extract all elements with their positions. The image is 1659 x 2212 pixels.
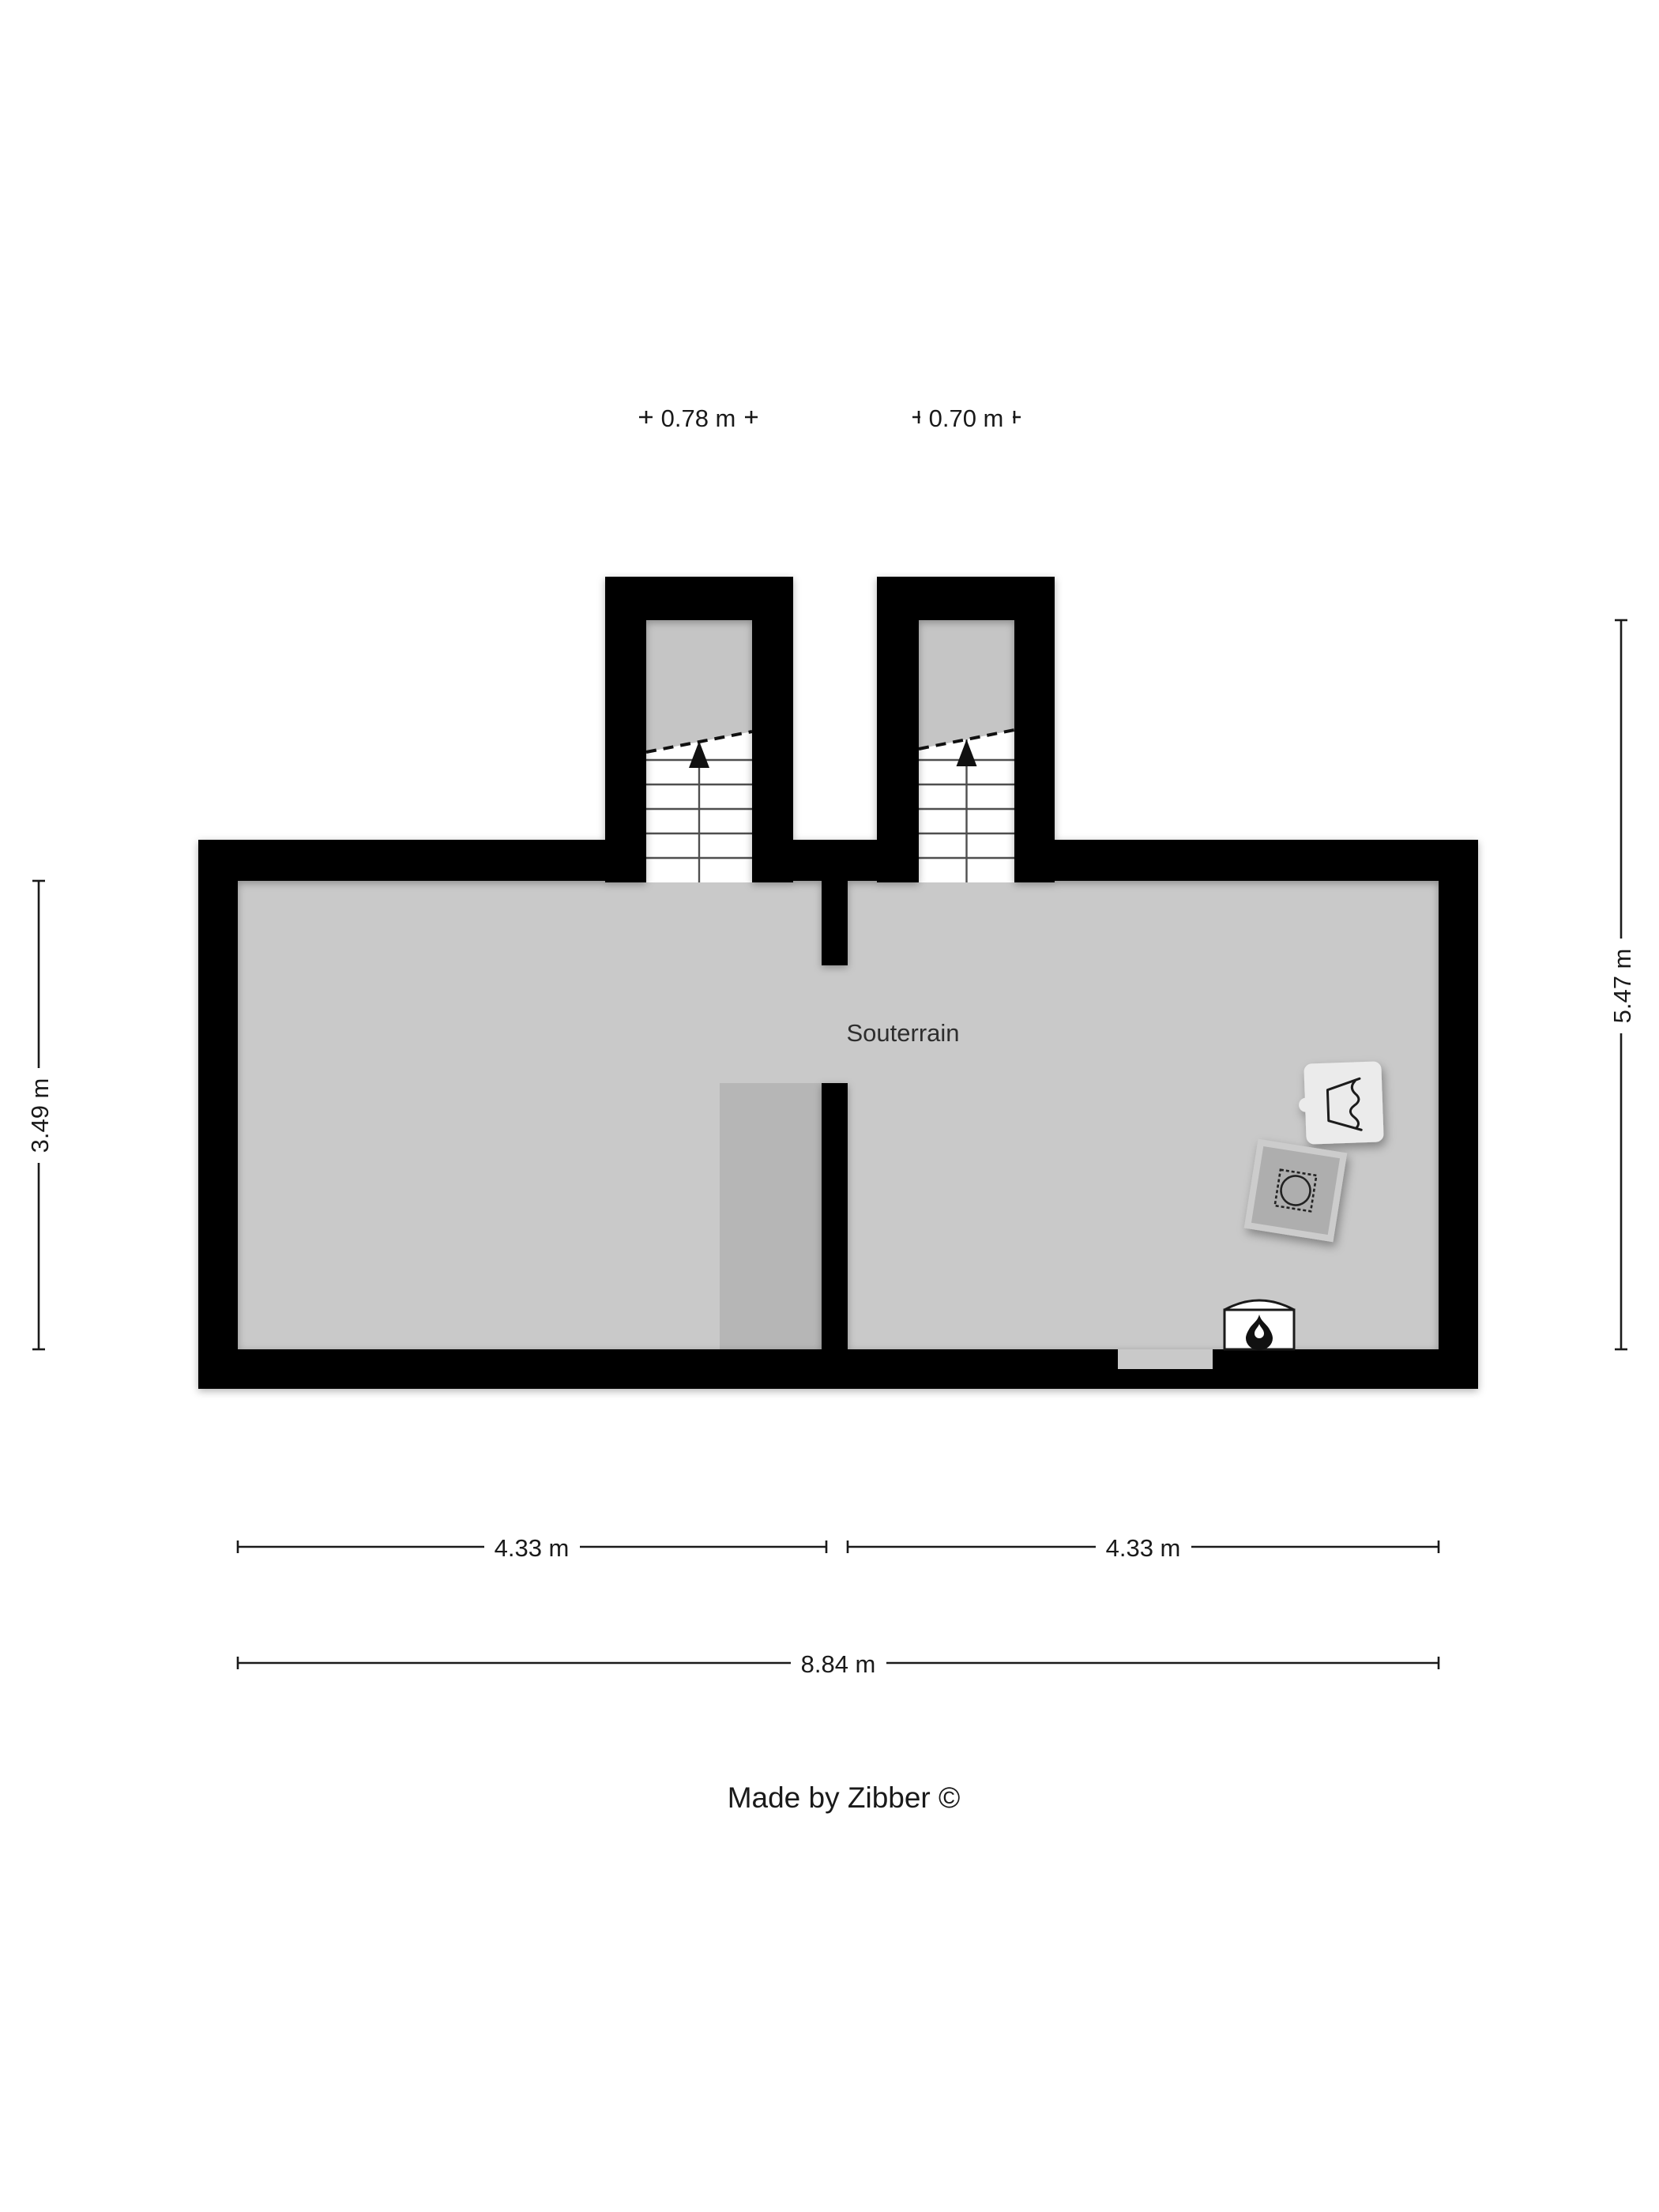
washing-machine-icon xyxy=(1247,1142,1343,1238)
dim-total-width: 8.84 m xyxy=(238,1647,1439,1679)
wall-top-segment xyxy=(1014,840,1478,881)
dim-label: 5.47 m xyxy=(1608,949,1636,1024)
wall-bottom xyxy=(198,1349,1478,1389)
dim-label: 4.33 m xyxy=(1106,1534,1181,1562)
wall-left xyxy=(198,840,238,1389)
divider-wall-lower xyxy=(822,1083,848,1349)
wall-right xyxy=(1439,840,1478,1389)
dim-room-left-width: 4.33 m xyxy=(238,1531,826,1563)
stair-left-tower-wall xyxy=(605,577,646,882)
stair-left-tower-wall xyxy=(605,577,793,620)
stair-left-tower-wall xyxy=(752,577,793,882)
dim-right-height: 5.47 m xyxy=(1605,620,1637,1349)
bottom-wall-recess xyxy=(1118,1349,1213,1369)
dim-stair-left-width: 0.78 m xyxy=(639,401,758,433)
room-label: Souterrain xyxy=(846,1019,959,1047)
dim-stair-right-width: 0.70 m xyxy=(912,401,1021,433)
water-heater-icon xyxy=(1297,1061,1383,1145)
stair-left xyxy=(646,620,752,882)
dim-left-height: 3.49 m xyxy=(23,881,55,1349)
divider-wall-upper xyxy=(822,881,848,965)
credit-text: Made by Zibber © xyxy=(728,1781,961,1814)
stair-right-tower-wall xyxy=(877,577,919,882)
dim-label: 4.33 m xyxy=(495,1534,570,1562)
stair-right xyxy=(919,620,1014,882)
inner-block xyxy=(720,1083,822,1349)
stair-right-tower-wall xyxy=(877,577,1055,620)
floor-plan-svg: 0.78 m 0.70 m 3.49 m 5.47 m 4.33 m xyxy=(0,0,1659,2212)
dim-label: 0.70 m xyxy=(929,404,1004,432)
fireplace-icon xyxy=(1224,1300,1294,1350)
dim-label: 3.49 m xyxy=(26,1078,54,1153)
floor-plan-page: 0.78 m 0.70 m 3.49 m 5.47 m 4.33 m xyxy=(0,0,1659,2212)
dim-label: 0.78 m xyxy=(661,404,736,432)
stair-right-tower-wall xyxy=(1014,577,1055,882)
dim-room-right-width: 4.33 m xyxy=(848,1531,1439,1563)
wall-top-segment xyxy=(198,840,646,881)
dim-label: 8.84 m xyxy=(801,1650,876,1678)
